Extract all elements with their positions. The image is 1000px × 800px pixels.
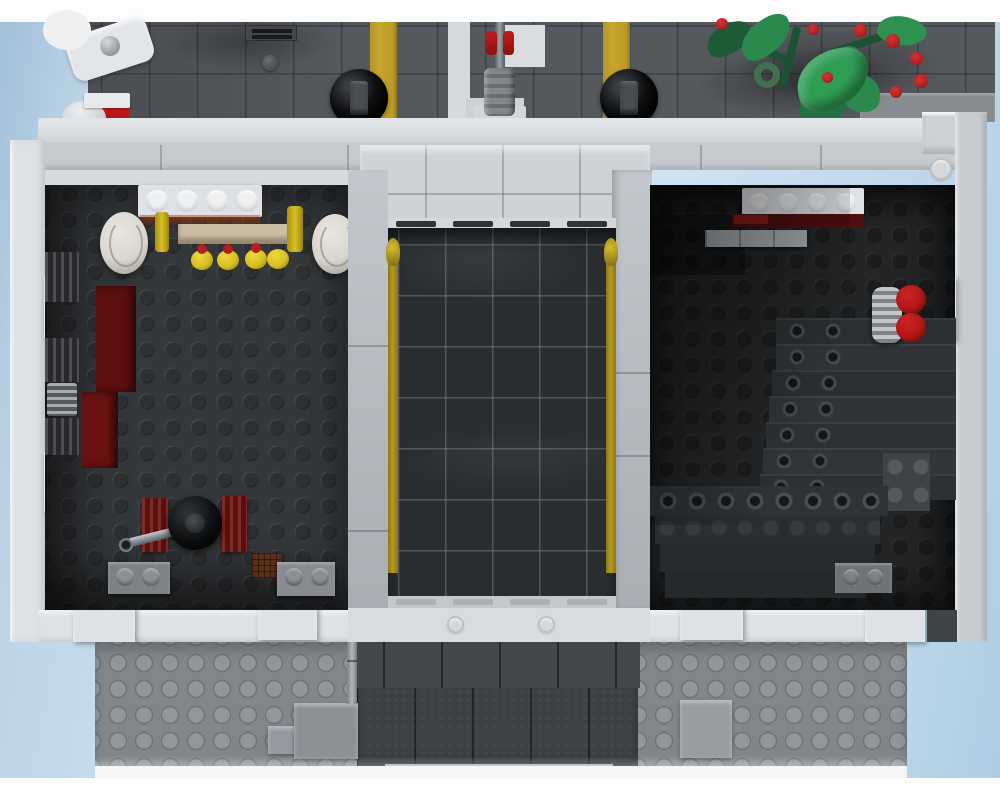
weapon-rack xyxy=(45,418,79,455)
berry xyxy=(890,86,902,98)
left-room-top-wall xyxy=(45,170,360,185)
red-brick-wall xyxy=(96,286,136,392)
berry xyxy=(886,34,900,48)
goblet xyxy=(191,238,213,272)
yellow-rail-nub xyxy=(386,238,400,266)
wall-joint xyxy=(612,372,652,374)
stair-side-brick xyxy=(883,453,930,511)
top-wall-sill xyxy=(38,120,987,142)
cannon-muzzle xyxy=(119,538,133,552)
red-ladder-rack xyxy=(142,498,168,552)
tire-hub xyxy=(620,81,638,115)
wall-joint xyxy=(700,145,702,170)
red-round-piece xyxy=(896,285,926,314)
bottom-baseplate xyxy=(95,642,907,768)
lamp-post-red-clip xyxy=(503,31,514,55)
wall-stud xyxy=(447,616,464,633)
gray-pipe xyxy=(347,642,357,704)
weapon-rack xyxy=(45,252,79,302)
berry xyxy=(854,24,867,37)
stud xyxy=(285,568,303,586)
shaft-bottom-wall xyxy=(348,608,650,642)
yellow-rail-right xyxy=(606,243,616,573)
floor-brick xyxy=(277,562,335,596)
street xyxy=(88,22,995,122)
dark-corner-brick xyxy=(927,610,957,642)
stud xyxy=(843,569,859,585)
stud xyxy=(116,568,134,586)
wall-stud xyxy=(930,158,952,180)
slope-brick xyxy=(680,700,732,758)
wall-joint xyxy=(160,145,162,170)
shaft-wall-right xyxy=(612,170,652,610)
stud xyxy=(206,190,228,212)
shaft-pit-tiles xyxy=(388,228,616,598)
roof-panel-row xyxy=(355,642,640,688)
left-outer-wall xyxy=(10,140,45,642)
red-candle xyxy=(223,244,233,254)
stud xyxy=(311,568,329,586)
floor-brick xyxy=(108,562,170,594)
red-brick-wall xyxy=(82,392,118,468)
wall-joint xyxy=(612,455,652,457)
berry xyxy=(716,18,728,30)
yellow-rail-left xyxy=(388,243,398,573)
shaft-bottom-sill xyxy=(388,596,616,608)
left-room xyxy=(45,170,360,610)
red-candle xyxy=(197,244,207,254)
stud xyxy=(176,190,198,212)
shaft-top-tiles xyxy=(360,145,650,218)
right-outer-wall xyxy=(955,112,987,642)
wall-lamp-screw xyxy=(100,36,120,56)
stud xyxy=(867,569,883,585)
lamp-post-base xyxy=(484,68,515,116)
stud xyxy=(146,190,168,212)
wall-lamp-globe xyxy=(43,10,91,50)
right-room xyxy=(650,185,955,610)
red-candle xyxy=(251,243,261,253)
weapon-rack xyxy=(45,338,79,382)
wall-joint xyxy=(820,145,822,170)
roof-panel-row xyxy=(357,688,638,766)
stud xyxy=(236,190,258,212)
goblet-cup xyxy=(267,249,289,269)
yellow-rail-nub xyxy=(604,238,618,266)
lamp-post-red-clip xyxy=(486,31,497,55)
bottom-white-margin xyxy=(0,778,1000,800)
street-barrier-tile xyxy=(84,93,130,108)
goblet xyxy=(245,237,267,271)
yellow-piece xyxy=(287,206,303,252)
lego-render-stage xyxy=(0,0,1000,800)
goblet xyxy=(217,238,239,272)
goblet xyxy=(267,237,289,271)
yellow-piece xyxy=(155,212,169,252)
slope-brick xyxy=(294,703,358,759)
plant-ring-piece xyxy=(754,62,780,88)
berry xyxy=(914,74,928,88)
tire-hub xyxy=(350,81,368,115)
berry xyxy=(910,52,923,65)
light-gray-brick xyxy=(835,563,892,593)
wall-joint xyxy=(347,145,349,170)
shaft-wall-left xyxy=(348,170,388,610)
storm-grille xyxy=(245,25,297,41)
wall-joint xyxy=(348,345,388,347)
stud xyxy=(142,568,160,586)
plant xyxy=(688,18,923,124)
cannon-wheel xyxy=(168,496,222,550)
manhole-stud xyxy=(262,55,278,71)
wall-stud xyxy=(538,616,555,633)
berry xyxy=(822,72,833,83)
room-shadow xyxy=(650,185,850,525)
red-round-piece xyxy=(896,313,926,342)
berry xyxy=(808,24,819,35)
red-ladder-rack xyxy=(222,496,247,552)
white-barrel xyxy=(100,212,148,274)
wall-joint xyxy=(348,530,388,532)
coil-piece xyxy=(47,383,77,416)
